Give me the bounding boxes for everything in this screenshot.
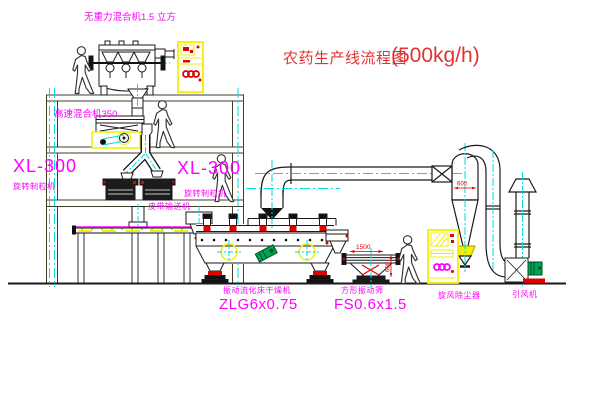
worker-figure-4	[399, 236, 420, 284]
svg-text:600: 600	[457, 182, 468, 188]
exhaust-duct	[246, 160, 462, 228]
svg-text:1500: 1500	[356, 244, 371, 251]
dimension-sieve-length: 1500	[350, 244, 383, 253]
label-belt-conveyor: 皮带输送机	[148, 203, 191, 211]
drawing-title-capacity: (500kg/h)	[391, 45, 480, 66]
control-cabinet-top	[178, 42, 203, 92]
process-flow-drawing: 1500 600 600 农药生产线流程图 (500kg/h) 无重力混合机1.…	[0, 0, 600, 403]
control-cabinet-bottom	[428, 230, 458, 283]
dimension-cyclone: 600	[454, 182, 476, 190]
worker-figure-2	[154, 101, 175, 148]
label-fan: 引风机	[512, 291, 538, 299]
induced-draft-fan	[505, 258, 545, 283]
label-granulator-right-name: 旋转制粒机	[184, 190, 227, 198]
label-granulator-left-model: XL-300	[13, 157, 77, 175]
granulator-right	[140, 171, 175, 200]
worker-figure-1	[73, 47, 94, 94]
label-cyclone: 旋风除尘器	[438, 292, 481, 300]
label-high-speed-mixer: 高速混合机350	[54, 110, 117, 120]
granulator-left	[103, 173, 138, 200]
drawing-title: 农药生产线流程图	[283, 51, 407, 66]
label-gravity-mixer: 无重力混合机1.5 立方	[84, 13, 176, 23]
label-granulator-right-model: XL-300	[177, 159, 241, 177]
dryer-legs	[202, 263, 333, 283]
label-sieve-name: 方形振动筛	[341, 287, 384, 295]
label-dryer-model: ZLG6x0.75	[219, 297, 298, 312]
belt-conveyor	[72, 226, 201, 284]
label-dryer-name: 振动流化床干燥机	[223, 287, 291, 295]
label-granulator-left-name: 旋转制粒机	[13, 183, 56, 191]
label-sieve-model: FS0.6x1.5	[334, 297, 407, 312]
svg-text:600: 600	[386, 261, 392, 272]
